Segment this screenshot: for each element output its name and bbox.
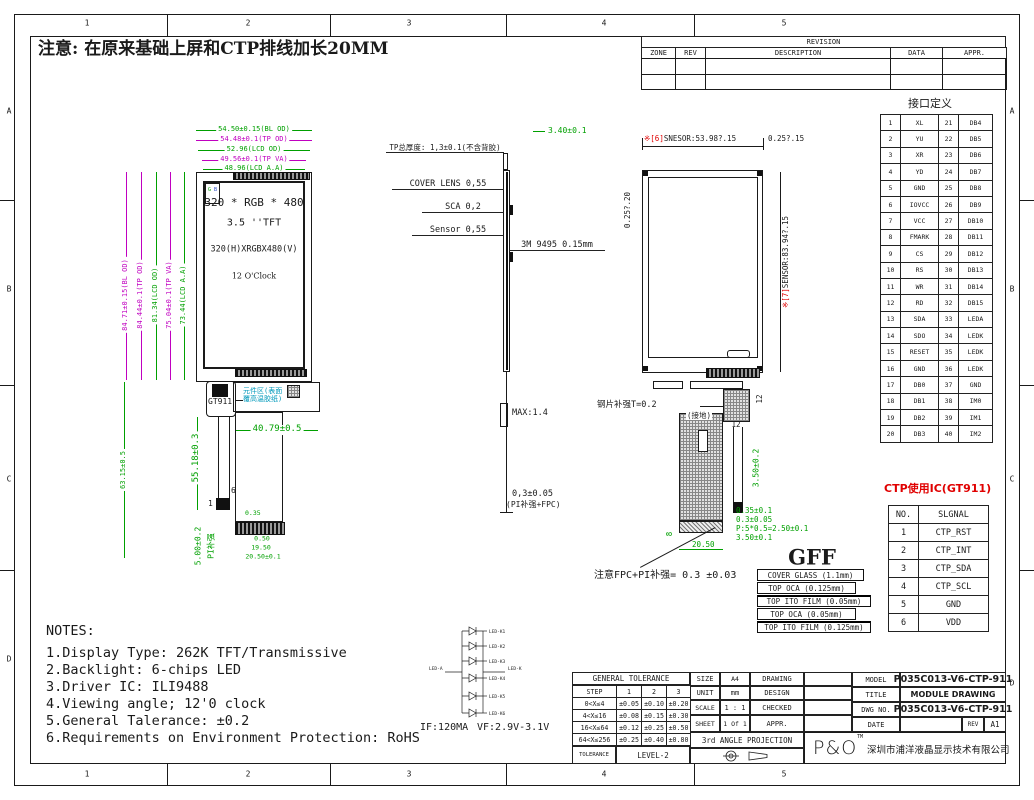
drawing-line [723,751,767,761]
zone-col-label: 5 [782,771,787,780]
table-cell: 22 [939,131,959,147]
date-label: DATE [852,717,900,732]
dim-label: 54.50±0.15(BL OD) [216,126,292,134]
projection-symbol-icon [721,749,773,763]
side-connector [500,403,508,427]
led-label: LED-K4 [489,676,506,682]
pin-table-title: 接口定义 [908,98,952,110]
table-cell: 13 [881,312,901,328]
table-cell: 1 [881,115,901,131]
drawing-line [500,512,513,513]
drawing-line [469,627,476,635]
table-cell: IM1 [959,410,993,426]
table-cell: 23 [939,148,959,164]
list-item: TOP ITO FILM (0.125mm) [757,621,871,633]
table-cell: DB1 [901,394,939,410]
dim-label: 0,3±0.05 [512,490,553,499]
tp-thickness-note: TP总厚度: 1,3±0.1(不含背胶) [386,144,504,153]
table-cell: 1 [617,686,642,698]
drawing-line [641,74,1006,75]
table-cell: 6 [889,614,919,632]
red-mark: ※[7] [781,288,790,308]
zone-row-label: B [1010,286,1015,295]
table-cell: 31 [939,279,959,295]
table-cell: DB8 [959,181,993,197]
pi-strip [679,521,723,533]
table-cell: DB5 [959,131,993,147]
table-cell: ±0.25 [617,734,642,746]
zone-row-label: C [1010,476,1015,485]
tolerance-table: STEP1230<X≤4±0.05±0.10±0.204<X≤16±0.08±0… [572,685,691,746]
drawing-line [506,172,508,370]
drawing-line [0,200,14,201]
drawing-line [0,570,14,571]
table-cell: GND [901,181,939,197]
steel-stiffener [723,389,750,422]
drawing-label: DRAWING [750,672,804,686]
table-cell: 3 [889,560,919,578]
zone-col-label: 1 [85,771,90,780]
table-cell: NO. [889,506,919,524]
table-cell: 21 [939,115,959,131]
drawing-line [757,171,762,176]
table-cell: DB6 [959,148,993,164]
drawing-line [694,764,695,786]
scale-label: SCALE [690,700,720,715]
table-cell: RS [901,263,939,279]
drawing-line [510,252,513,262]
table-cell: CTP_SDA [919,560,989,578]
dim-label: 0.3±0.05 [736,516,772,524]
table-cell: YU [901,131,939,147]
led-label: LED-K1 [489,629,506,635]
back-inner [648,177,758,358]
dim-label: P:5*0.5=2.50±0.1 [736,525,808,533]
table-cell: ±0.20 [667,698,691,710]
dim-label: 0.25?.15 [768,135,804,143]
ctp-pin-table: NO.SLGNAL1CTP_RST2CTP_INT3CTP_SDA4CTP_SC… [888,505,989,632]
stack-label: COVER LENS 0,55 [392,180,504,190]
drawing-line [642,146,763,147]
gff-stack: COVER GLASS (1.1mm)TOP OCA (0.125mm)TOP … [757,569,871,634]
dim-label: 19.50 [251,544,271,551]
table-cell: GND [919,596,989,614]
drawing-line [510,205,513,215]
list-item: TOP OCA (0.125mm) [757,582,856,594]
drawing-line [469,692,476,700]
size-label: SIZE [690,672,720,686]
tolerance-footer-value: LEVEL-2 [616,746,690,764]
dim-label: PI补强 [208,533,217,559]
checked-value [804,700,852,715]
drawing-line [218,417,219,498]
drawing-line [235,369,307,377]
table-cell: ±0.40 [642,734,667,746]
drawing-line [690,381,743,389]
size-value: A4 [720,672,750,686]
table-cell: 33 [939,312,959,328]
table-cell: 4<X≤16 [573,710,617,722]
table-cell: 64<X≤256 [573,734,617,746]
drawing-line [749,752,767,760]
brand-block: P&O TM 深圳市浦洋液晶显示技术有限公司 [804,732,1006,764]
drawing-line [506,764,507,786]
table-cell: 17 [881,377,901,393]
corner-g-label: G [208,188,211,194]
notes-title: NOTES: [46,624,95,639]
dim-label: 0.35 [245,510,261,517]
dim-label: 63.15±0.5 [120,449,128,491]
drawing-line [533,131,545,132]
drawing-value [804,672,852,686]
corner-b-label: B [214,188,217,194]
drawing-line [469,627,476,717]
table-cell: SLGNAL [919,506,989,524]
drawing-line [469,657,476,665]
led-if-spec: IF:120MA [420,722,468,733]
table-cell: WR [901,279,939,295]
table-cell: 19 [881,410,901,426]
table-cell: CTP_SCL [919,578,989,596]
pin-number: 6 [231,487,236,496]
sensor-dim-6: ※[6]SNESOR:53.98?.15 [644,135,736,143]
front-fpc-top [233,382,320,412]
table-cell: 15 [881,344,901,360]
table-cell: ±0.10 [642,698,667,710]
drawing-line [1020,385,1034,386]
dim-label: 0.25?.20 [624,192,632,228]
screen-line: 320 * RGB * 480 [204,197,303,209]
dim-label: 54.48±0.1(TP OD) [218,136,289,144]
stack-label: SCA 0,2 [422,203,504,213]
zone-col-label: 4 [602,20,607,29]
drawing-line [233,172,310,180]
led-label: LED-K6 [489,711,506,717]
table-cell: DB0 [901,377,939,393]
table-cell: 18 [881,394,901,410]
sensor-dim-7: ※[7]SENSOR:83.94?.15 [782,216,790,308]
tolerance-title: GENERAL TOLERANCE [572,672,690,685]
table-cell: DB11 [959,230,993,246]
table-cell: 40 [939,426,959,442]
dim-text: SENSOR:83.94?.15 [781,216,790,288]
drawing-line [727,350,750,358]
drawing-line [287,385,300,398]
table-cell: 35 [939,344,959,360]
drawing-line [469,709,476,717]
table-cell: 7 [881,213,901,229]
drawing-line [700,406,723,407]
dim-label: 3.40±0.1 [548,127,587,136]
table-cell: 24 [939,164,959,180]
stack-label: Sensor 0,55 [412,226,504,236]
table-cell: LEDK [959,328,993,344]
drawing-line [445,627,505,717]
dim-label: 5.00±0.2 [195,527,204,566]
side-tp-top [503,153,508,170]
zone-row-label: A [7,108,12,117]
brand-logo: P&O [813,738,857,759]
ground-label: (接地) [686,412,712,420]
model-value: P035C013-V6-CTP-911 [900,672,1006,687]
top-note: 注意: 在原来基础上屏和CTP排线加长20MM [38,40,388,59]
table-cell: 36 [939,361,959,377]
zone-col-label: 2 [246,20,251,29]
table-cell: 2 [642,686,667,698]
table-cell: DB3 [901,426,939,442]
scale-value: 1 : 1 [720,700,750,715]
drawing-line [742,427,743,502]
drawing-line [506,14,507,36]
table-cell: CS [901,246,939,262]
date-value [900,717,962,732]
notes-list: 1.Display Type: 262K TFT/Transmissive2.B… [46,645,420,747]
design-value [804,686,852,700]
zone-row-label: A [1010,108,1015,117]
drawing-line [653,381,683,389]
drawing-line [469,674,476,682]
table-cell: IOVCC [901,197,939,213]
dim-label: 49.56±0.1(TP VA) [218,156,289,164]
led-cathode-label: LED-K [508,666,522,672]
list-item: 5.General Talerance: ±0.2 [46,713,420,730]
table-cell: GND [901,361,939,377]
table-cell: SDO [901,328,939,344]
drawing-line [0,385,14,386]
table-cell: ±0.08 [617,710,642,722]
table-cell: 4 [889,578,919,596]
steel-note: 钢片补强T=0.2 [597,401,657,410]
table-cell: 39 [939,410,959,426]
list-item: 4.Viewing angle; 12'0 clock [46,696,420,713]
table-cell: 30 [939,263,959,279]
title-label: TITLE [852,687,900,702]
table-cell: 14 [881,328,901,344]
table-cell: DB13 [959,263,993,279]
back-connector [706,368,760,378]
drawing-line [212,384,228,397]
unit-label: UNIT [690,686,720,700]
ctp-tail-tip [216,498,230,510]
ctp-title: CTP使用IC(GT911) [884,483,991,495]
sheet-value: 1 Of 1 [720,715,750,732]
projection-label: 3rd ANGLE PROJECTION [690,732,804,748]
screen-line: 3.5 ''TFT [227,218,281,229]
table-cell: 20 [881,426,901,442]
dim-label: 12 [756,394,764,403]
unit-value: mm [720,686,750,700]
dim-label: MAX:1.4 [512,409,548,418]
dim-label: 0.50 [254,535,270,542]
drawing-line [229,417,230,498]
table-cell: 8 [881,230,901,246]
table-cell: 5 [881,181,901,197]
dim-label: 8 [666,532,674,537]
zone-col-label: 2 [246,771,251,780]
table-cell: 37 [939,377,959,393]
table-cell: XR [901,148,939,164]
dim-label: 84.71±0.15(BL OD) [122,257,130,333]
table-cell: 29 [939,246,959,262]
table-cell: CTP_RST [919,524,989,542]
drawing-line [942,58,943,90]
led-label: LED-K3 [489,659,506,665]
table-cell: LEDK [959,344,993,360]
dim-label: 52.96(LCD OD) [225,146,284,154]
projection-symbols [690,748,804,764]
dim-label: 81.34(LCD OD) [152,266,160,325]
brand-tm: TM [857,735,863,741]
dim-label: 20.50±0.1 [245,553,280,560]
table-cell: ±0.15 [642,710,667,722]
design-label: DESIGN [750,686,804,700]
sheet-label: SHEET [690,715,720,732]
dim-label: 84.44±0.1(TP OD) [137,259,145,330]
table-cell: DB15 [959,295,993,311]
screen-line: 320(H)XRGBX480(V) [211,245,298,254]
table-cell: DB4 [959,115,993,131]
table-cell: YD [901,164,939,180]
table-cell: VDD [919,614,989,632]
table-cell: 9 [881,246,901,262]
table-cell: LEDA [959,312,993,328]
drawing-line: LED-K1 LED-K2 LED-K3 LED-K4 LED-K5 LED-K… [429,629,522,717]
table-cell: ±0.30 [667,710,691,722]
table-cell: 1 [889,524,919,542]
table-cell: IM2 [959,426,993,442]
pin-number: 1 [208,500,213,509]
dim-label: 3.50±0.2 [753,449,762,488]
table-cell: FMARK [901,230,939,246]
dim-label: 55.18±0.3 [192,432,202,485]
table-cell: XL [901,115,939,131]
title-value: MODULE DRAWING [900,687,1006,702]
drawing-line [642,138,643,150]
drawing-line [469,642,476,650]
drawing-line [167,14,168,36]
table-cell: 32 [939,295,959,311]
drawing-line [705,58,706,90]
table-cell: 6 [881,197,901,213]
table-cell: 4 [881,164,901,180]
dim-label: 40.79±0.5 [251,425,304,435]
table-cell: ±0.80 [667,734,691,746]
gt911-label: GT911 [208,398,232,407]
dim-text: SNESOR:53.98?.15 [664,134,736,143]
drawing-line [733,427,734,502]
table-cell: ±0.05 [617,698,642,710]
table-cell: 11 [881,279,901,295]
company-name: 深圳市浦洋液晶显示技术有限公司 [867,746,1010,756]
table-cell: VCC [901,213,939,229]
table-cell: 27 [939,213,959,229]
dim-label: 0.35±0.1 [736,507,772,515]
table-cell: RD [901,295,939,311]
drawing-line [1020,200,1034,201]
dwg-no-value: P035C013-V6-CTP-911 [900,702,1006,717]
drawing-line [763,138,764,150]
table-cell: 5 [889,596,919,614]
list-item: 2.Backlight: 6-chips LED [46,662,420,679]
stack-label: 3M 9495 0.15mm [509,241,605,251]
zone-col-label: 4 [602,771,607,780]
side-fpc-line [506,372,507,512]
zone-row-label: B [7,286,12,295]
list-item: COVER GLASS (1.1mm) [757,569,864,581]
appr-label: APPR. [750,715,804,732]
drawing-line [330,764,331,786]
dim-label: 75.04±0.1(TP VA) [166,259,174,330]
dim-label: 20.50 [692,541,715,549]
table-cell: DB10 [959,213,993,229]
table-cell: DB7 [959,164,993,180]
led-circuit: LED-K1 LED-K2 LED-K3 LED-K4 LED-K5 LED-K… [415,620,565,738]
led-vf-spec: VF:2.9V-3.1V [477,722,549,733]
list-item: TOP ITO FILM (0.05mm) [757,595,871,607]
led-label: LED-K5 [489,694,506,700]
table-cell: 16<X≤64 [573,722,617,734]
zone-col-label: 3 [407,20,412,29]
fpc-pi-note: 注意FPC+PI补强= 0.3 ±0.03 [594,570,736,581]
table-cell: 3 [667,686,691,698]
table-cell: 34 [939,328,959,344]
appr-value [804,715,852,732]
table-cell: 12 [881,295,901,311]
drawing-line [1020,570,1034,571]
table-cell: STEP [573,686,617,698]
led-label: LED-K2 [489,644,506,650]
interface-pin-table: 1XL21DB42YU22DB53XR23DB64YD24DB75GND25DB… [880,114,993,443]
table-cell: 28 [939,230,959,246]
table-cell: ±0.25 [642,722,667,734]
table-cell: LEDK [959,361,993,377]
drawing-line [675,58,676,90]
drawing-line [698,430,708,452]
red-mark: ※[6] [644,134,664,143]
table-cell: 25 [939,181,959,197]
table-cell: ±0.12 [617,722,642,734]
screen-line: 12 O'Clock [232,273,276,282]
drawing-line [330,14,331,36]
checked-label: CHECKED [750,700,804,715]
table-cell: 2 [889,542,919,560]
table-cell: 38 [939,394,959,410]
drawing-line [167,764,168,786]
drawing-sheet: 1 2 3 4 5 1 2 3 4 5 A B C D A B C D 注意: … [0,0,1034,800]
table-cell: DB12 [959,246,993,262]
zone-col-label: 3 [407,771,412,780]
table-cell: 10 [881,263,901,279]
list-item: TOP OCA (0.05mm) [757,608,856,620]
zone-row-label: C [7,476,12,485]
zone-row-label: D [7,656,12,665]
drawing-line [694,14,695,36]
table-cell: 2 [881,131,901,147]
zone-col-label: 1 [85,20,90,29]
tolerance-footer-label: TOLERANCE [572,746,616,764]
dim-label: 3.50±0.1 [736,534,772,542]
rev-value: A1 [984,717,1006,732]
table-cell: GND [959,377,993,393]
list-item: 6.Requirements on Environment Protection… [46,730,420,747]
table-cell: 3 [881,148,901,164]
table-cell: SDA [901,312,939,328]
dim-label: 73.44(LCD A.A) [180,263,188,326]
dim-label: 12 [731,421,740,429]
table-cell: CTP_INT [919,542,989,560]
table-cell: 16 [881,361,901,377]
dim-label: (PI补强+FPC) [506,501,561,510]
